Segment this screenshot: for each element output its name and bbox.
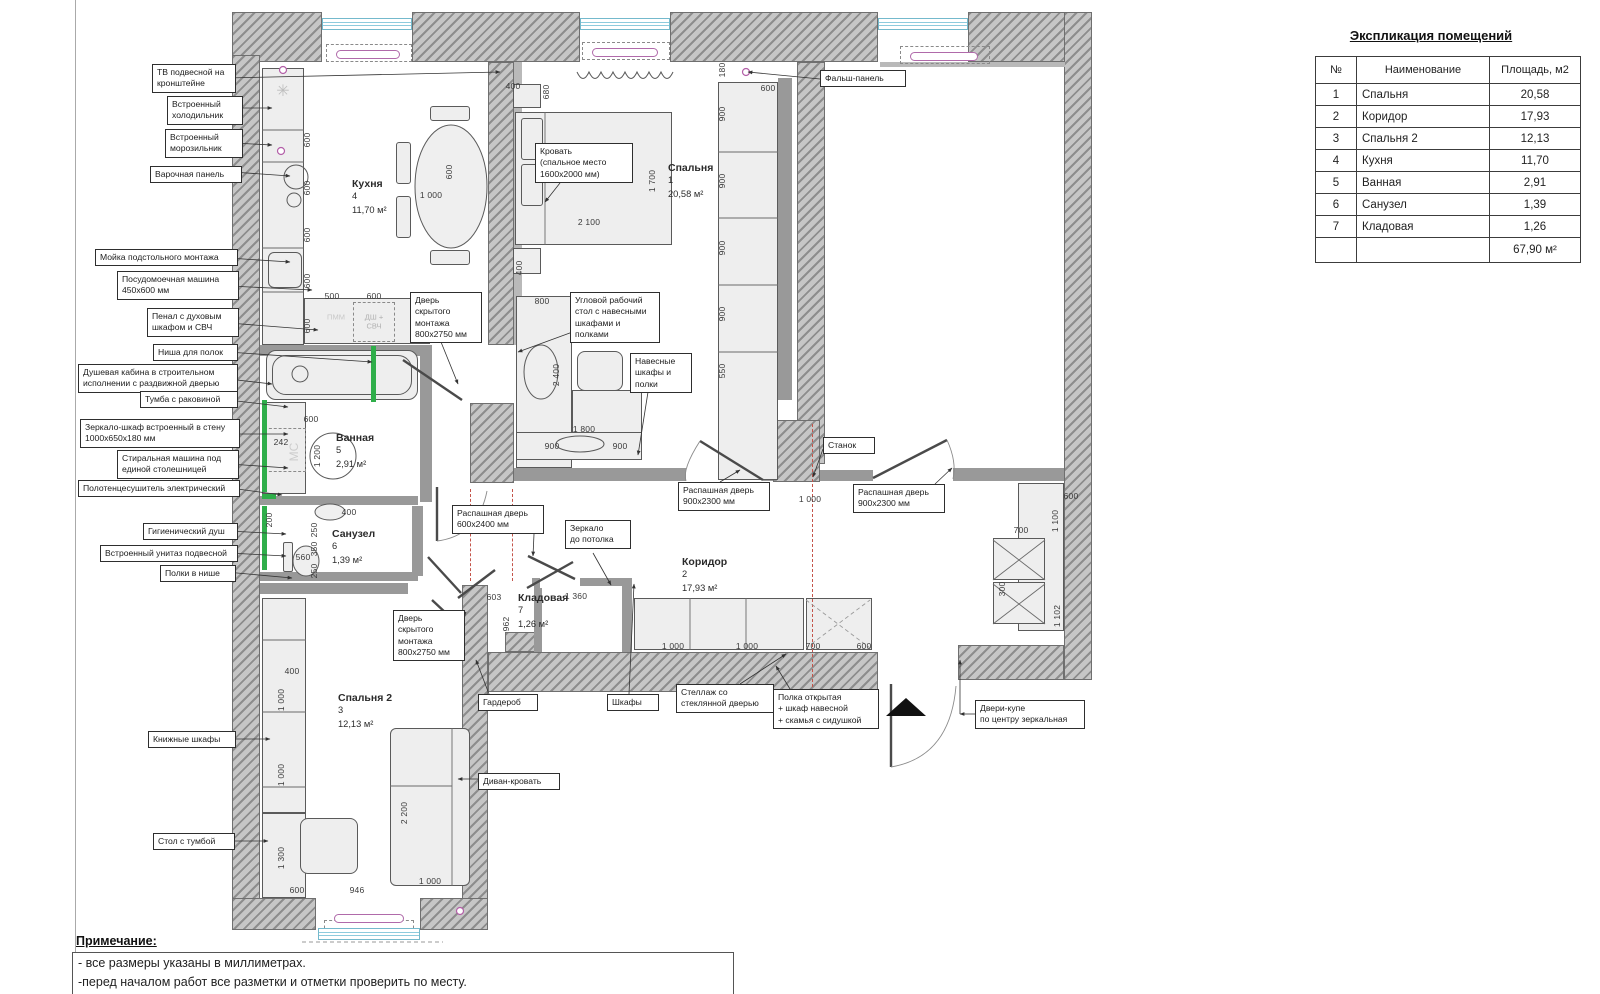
dimension-label: 1 000	[420, 190, 442, 200]
room-rnum: 5	[336, 444, 374, 458]
note-line: -перед началом работ все разметки и отме…	[78, 973, 728, 992]
dimension-label: 700	[806, 641, 821, 651]
dimension-label: 1 000	[276, 689, 286, 711]
legend-cell-area: 17,93	[1490, 106, 1581, 128]
legend-cell-num: 2	[1316, 106, 1357, 128]
outlet-marker	[280, 67, 287, 74]
callout-label: Полка открытая + шкаф навесной + скамья …	[773, 689, 879, 729]
legend-header-area: Площадь, м2	[1490, 57, 1581, 84]
plan-text: ✳	[276, 83, 289, 101]
legend-row: 7Кладовая1,26	[1316, 216, 1581, 238]
dimension-label: 1 300	[276, 847, 286, 869]
door-leaf	[428, 557, 461, 593]
callout-label: ТВ подвесной на кронштейне	[152, 64, 236, 93]
dimension-label: 1 000	[276, 764, 286, 786]
callout-label: Полки в нише	[160, 565, 236, 582]
outlet-marker	[278, 148, 285, 155]
leader-line	[629, 584, 634, 694]
callout-label: Гардероб	[478, 694, 538, 711]
room-rnum: 7	[518, 604, 568, 618]
legend-cell-area: 12,13	[1490, 128, 1581, 150]
dimension-label: 1 100	[1050, 510, 1060, 532]
room-label: Ванная52,91 м²	[336, 432, 374, 472]
callout-label: Книжные шкафы	[148, 731, 236, 748]
leader-line	[638, 392, 648, 455]
callout-label: Распашная дверь 600х2400 мм	[452, 505, 544, 534]
legend-table: № Наименование Площадь, м2 1Спальня20,58…	[1315, 56, 1581, 263]
dimension-label: 500	[325, 291, 340, 301]
callout-label: Распашная дверь 900х2300 мм	[853, 484, 945, 513]
callout-label: Кровать (спальное место 1600х2000 мм)	[535, 143, 633, 183]
legend-title: Экспликация помещений	[1315, 28, 1547, 43]
room-rarea: 2,91 м²	[336, 458, 374, 472]
dimension-label: 1 000	[419, 876, 441, 886]
callout-label: Встроенный морозильник	[165, 129, 243, 158]
dimension-label: 962	[501, 617, 511, 632]
dimension-label: 2 400	[551, 364, 561, 386]
dimension-label: 400	[506, 81, 521, 91]
furniture-ellipse	[415, 125, 487, 248]
drawing-sheet: 4006806006006006006005006006001 0001 700…	[0, 0, 1600, 994]
note-line: - все размеры указаны в миллиметрах.	[78, 954, 728, 973]
callout-label: Фальш-панель	[820, 70, 906, 87]
leader-line	[935, 468, 952, 484]
dimension-label: 1 200	[312, 445, 322, 467]
plan-text: МС	[288, 443, 302, 462]
callout-label: Стиральная машина под единой столешницей	[117, 450, 239, 479]
room-rname: Ванная	[336, 432, 374, 444]
legend-cell-num: 1	[1316, 84, 1357, 106]
callout-label: Станок	[823, 437, 875, 454]
dimension-label: 946	[350, 885, 365, 895]
room-label: Коридор217,93 м²	[682, 556, 727, 596]
dimension-label: 603	[487, 592, 502, 602]
room-rarea: 1,39 м²	[332, 554, 375, 568]
legend-cell-num: 7	[1316, 216, 1357, 238]
door-leaf	[700, 441, 763, 480]
callout-label: Диван-кровать	[478, 773, 560, 790]
legend-total-row: 67,90 м²	[1316, 238, 1581, 263]
leader-line	[533, 534, 534, 556]
legend-header-row: № Наименование Площадь, м2	[1316, 57, 1581, 84]
dimension-label: 250	[309, 564, 319, 579]
callout-label: Дверь скрытого монтажа 800х2750 мм	[410, 292, 482, 343]
dimension-label: 1 800	[573, 424, 595, 434]
callout-label: Дверь скрытого монтажа 800х2750 мм	[393, 610, 465, 661]
room-rnum: 2	[682, 568, 727, 582]
dimension-label: 1 000	[662, 641, 684, 651]
dimension-label: 600	[302, 133, 312, 148]
fixture-circle	[287, 193, 301, 207]
room-rarea: 20,58 м²	[668, 188, 713, 202]
legend-header-name: Наименование	[1357, 57, 1490, 84]
callout-label: Встроенный унитаз подвесной	[100, 545, 238, 562]
leader-line	[593, 553, 611, 585]
dimension-label: 600	[302, 228, 312, 243]
room-rarea: 1,26 м²	[518, 618, 568, 632]
dimension-label: 600	[857, 641, 872, 651]
room-label: Кухня411,70 м²	[352, 178, 387, 218]
note-title: Примечание:	[76, 934, 157, 948]
callout-label: Полотенцесушитель электрический	[78, 480, 240, 497]
dimension-label: 550	[717, 364, 727, 379]
legend-row: 4Кухня11,70	[1316, 150, 1581, 172]
legend-cell-name: Спальня 2	[1357, 128, 1490, 150]
room-rname: Спальня 2	[338, 692, 392, 704]
dimension-label: 400	[514, 261, 524, 276]
dimension-label: 600	[290, 885, 305, 895]
legend-cell-name: Спальня	[1357, 84, 1490, 106]
callout-label: Посудомоечная машина 450х600 мм	[117, 271, 239, 300]
legend-cell-name: Коридор	[1357, 106, 1490, 128]
callout-label: Тумба с раковиной	[140, 391, 238, 408]
callout-label: Шкафы	[607, 694, 659, 711]
callout-label: Стол с тумбой	[153, 833, 235, 850]
legend-cell-num: 6	[1316, 194, 1357, 216]
leader-line	[229, 286, 312, 290]
legend-row: 3Спальня 212,13	[1316, 128, 1581, 150]
legend-total-area: 67,90 м²	[1490, 238, 1581, 263]
dimension-label: 680	[541, 85, 551, 100]
note-box: - все размеры указаны в миллиметрах. -пе…	[72, 952, 734, 994]
dimension-label: 1 700	[647, 170, 657, 192]
legend-row: 1Спальня20,58	[1316, 84, 1581, 106]
dimension-label: 600	[302, 274, 312, 289]
door-swing-arc	[947, 440, 954, 479]
outlet-marker	[457, 908, 464, 915]
door-leaf	[528, 556, 575, 579]
room-rname: Коридор	[682, 556, 727, 568]
room-rname: Кухня	[352, 178, 387, 190]
door-leaf	[403, 360, 462, 400]
dimension-label: 2 100	[578, 217, 600, 227]
callout-label: Угловой рабочий стол с навесными шкафами…	[570, 292, 660, 343]
callout-label: Зеркало до потолка	[565, 520, 631, 549]
dimension-label: 600	[761, 83, 776, 93]
callout-label: Двери-купе по центру зеркальная	[975, 700, 1085, 729]
dimension-label: 900	[717, 174, 727, 189]
fixture-circle	[292, 366, 308, 382]
callout-label: Встроенный холодильник	[167, 96, 243, 125]
legend-cell-area: 11,70	[1490, 150, 1581, 172]
legend-cell-area: 2,91	[1490, 172, 1581, 194]
room-rnum: 1	[668, 174, 713, 188]
callout-label: Навесные шкафы и полки	[630, 353, 692, 393]
dimension-label: 900	[717, 307, 727, 322]
callout-label: Варочная панель	[150, 166, 242, 183]
room-rname: Санузел	[332, 528, 375, 540]
dimension-label: 300	[997, 582, 1007, 597]
legend-row: 6Санузел1,39	[1316, 194, 1581, 216]
dimension-label: 1 000	[736, 641, 758, 651]
room-rnum: 6	[332, 540, 375, 554]
room-rnum: 3	[338, 704, 392, 718]
door-swing-arc	[891, 686, 956, 767]
callout-label: Ниша для полок	[153, 344, 238, 361]
callout-label: Пенал с духовым шкафом и СВЧ	[147, 308, 239, 337]
dimension-label: 600	[304, 414, 319, 424]
dimension-label: 900	[545, 441, 560, 451]
leader-line	[740, 654, 786, 684]
legend-cell-area: 1,26	[1490, 216, 1581, 238]
dimension-label: 1 102	[1052, 605, 1062, 627]
leader-line	[228, 352, 372, 362]
room-label: Спальня 2312,13 м²	[338, 692, 392, 732]
legend-cell-name: Кухня	[1357, 150, 1490, 172]
dimension-label: 400	[342, 507, 357, 517]
dimension-label: 600	[1064, 491, 1079, 501]
dimension-label: 700	[1014, 525, 1029, 535]
dimension-label: 600	[302, 181, 312, 196]
dimension-label: 400	[285, 666, 300, 676]
dimension-label: 800	[535, 296, 550, 306]
callout-label: Гигиенический душ	[143, 523, 238, 540]
dimension-label: 560	[296, 552, 311, 562]
legend-header-num: №	[1316, 57, 1357, 84]
callout-label: Душевая кабина в строительном исполнении…	[78, 364, 238, 393]
legend-cell-name: Ванная	[1357, 172, 1490, 194]
furniture-ellipse	[556, 436, 604, 452]
dimension-label: 1 000	[799, 494, 821, 504]
leader-line	[748, 72, 820, 79]
plan-text: ПММ	[327, 314, 345, 323]
leader-line	[226, 72, 500, 78]
callout-label: Стеллаж со стеклянной дверью	[676, 684, 774, 713]
callout-label: Распашная дверь 900х2300 мм	[678, 482, 770, 511]
dimension-label: 600	[302, 319, 312, 334]
room-rarea: 11,70 м²	[352, 204, 387, 218]
room-rname: Кладовая	[518, 592, 568, 604]
dimension-label: 900	[613, 441, 628, 451]
callout-label: Мойка подстольного монтажа	[95, 249, 238, 266]
legend-cell-area: 20,58	[1490, 84, 1581, 106]
room-label: Кладовая71,26 м²	[518, 592, 568, 632]
room-rnum: 4	[352, 190, 387, 204]
dimension-label: 600	[367, 291, 382, 301]
plan-text: ДШ + СВЧ	[365, 313, 383, 330]
room-label: Санузел61,39 м²	[332, 528, 375, 568]
callout-label: Зеркало-шкаф встроенный в стену 1000х650…	[80, 419, 240, 448]
dimension-label: 250	[309, 523, 319, 538]
legend-cell-num: 3	[1316, 128, 1357, 150]
legend-cell-num: 5	[1316, 172, 1357, 194]
leader-line	[776, 666, 790, 689]
room-rname: Спальня	[668, 162, 713, 174]
door-leaf	[873, 440, 947, 478]
dimension-label: 2 200	[399, 802, 409, 824]
leader-line	[813, 449, 823, 477]
legend-cell-name: Кладовая	[1357, 216, 1490, 238]
room-label: Спальня120,58 м²	[668, 162, 713, 202]
leader-line	[441, 342, 458, 384]
dimension-label: 600	[444, 165, 454, 180]
curtain-line	[577, 72, 673, 79]
leader-line	[720, 470, 740, 482]
dimension-label: 200	[264, 513, 274, 528]
legend-cell-area: 1,39	[1490, 194, 1581, 216]
dimension-label: 180	[717, 63, 727, 78]
legend-row: 2Коридор17,93	[1316, 106, 1581, 128]
room-rarea: 17,93 м²	[682, 582, 727, 596]
dimension-label: 900	[717, 241, 727, 256]
dimension-label: 900	[717, 107, 727, 122]
legend-row: 5Ванная2,91	[1316, 172, 1581, 194]
room-rarea: 12,13 м²	[338, 718, 392, 732]
legend-cell-name: Санузел	[1357, 194, 1490, 216]
leader-line	[476, 660, 489, 694]
leader-line	[545, 183, 560, 202]
legend-cell-num: 4	[1316, 150, 1357, 172]
furniture-ellipse	[315, 504, 345, 520]
door-swing-arc	[685, 441, 700, 481]
